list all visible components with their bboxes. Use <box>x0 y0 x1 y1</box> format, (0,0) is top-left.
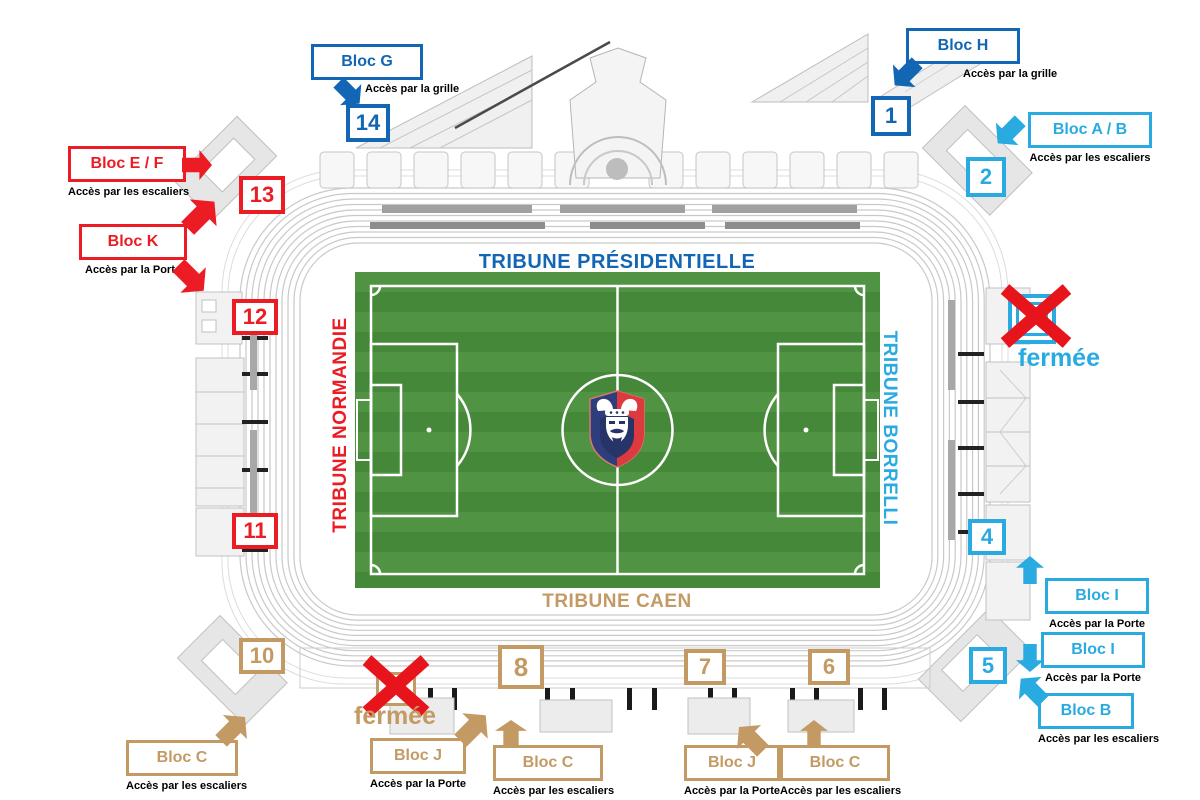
gate-1: 1 <box>871 96 911 136</box>
bloc-c-south1-label: Bloc C Accès par les escaliers <box>493 745 603 797</box>
tribune-normandie-label: TRIBUNE NORMANDIE <box>330 315 352 535</box>
bloc-j-southwest-label: Bloc J Accès par la Porte <box>370 738 466 790</box>
tribune-borrelli-label: TRIBUNE BORRELLI <box>878 328 900 528</box>
gate-12: 12 <box>232 299 278 335</box>
gate-11: 11 <box>232 513 278 549</box>
tribune-caen-label: TRIBUNE CAEN <box>527 591 707 613</box>
bloc-j-south-label: Bloc J Accès par la Porte <box>684 745 780 797</box>
bloc-h-label: Bloc H Accès par la grille <box>906 28 1020 64</box>
gate-5: 5 <box>969 647 1007 684</box>
bloc-c-west-label: Bloc C Accès par les escaliers <box>126 740 238 792</box>
gate-7: 7 <box>684 649 726 685</box>
bloc-i-lower-label: Bloc I Accès par la Porte <box>1041 632 1145 684</box>
stadium-map: TRIBUNE PRÉSIDENTIELLE TRIBUNE CAEN TRIB… <box>0 0 1200 800</box>
closed-gate-east: fermée <box>1000 288 1110 383</box>
bloc-i-upper-label: Bloc I Accès par la Porte <box>1045 578 1149 630</box>
gate-13: 13 <box>239 176 285 214</box>
gate-6: 6 <box>808 649 850 685</box>
gate-2: 2 <box>966 157 1006 197</box>
top-stand-bars <box>370 205 860 229</box>
tribune-presidentielle-label: TRIBUNE PRÉSIDENTIELLE <box>417 251 817 274</box>
gate-4: 4 <box>968 519 1006 555</box>
gate-14: 14 <box>346 104 390 142</box>
bloc-ab-label: Bloc A / B Accès par les escaliers <box>1028 112 1152 164</box>
bloc-b-label: Bloc B Accès par les escaliers <box>1038 693 1134 745</box>
club-crest <box>586 389 648 469</box>
gate-10: 10 <box>239 638 285 674</box>
closed-gate-south: fermée <box>350 650 460 745</box>
bloc-k-label: Bloc K Accès par la Porte <box>79 224 187 276</box>
bloc-g-label: Bloc G Accès par la grille <box>311 44 423 80</box>
bloc-c-south2-label: Bloc C Accès par les escaliers <box>780 745 890 797</box>
closed-x-icon <box>1000 282 1072 350</box>
gate-8: 8 <box>498 645 544 689</box>
bloc-ef-label: Bloc E / F Accès par les escaliers <box>68 146 186 198</box>
